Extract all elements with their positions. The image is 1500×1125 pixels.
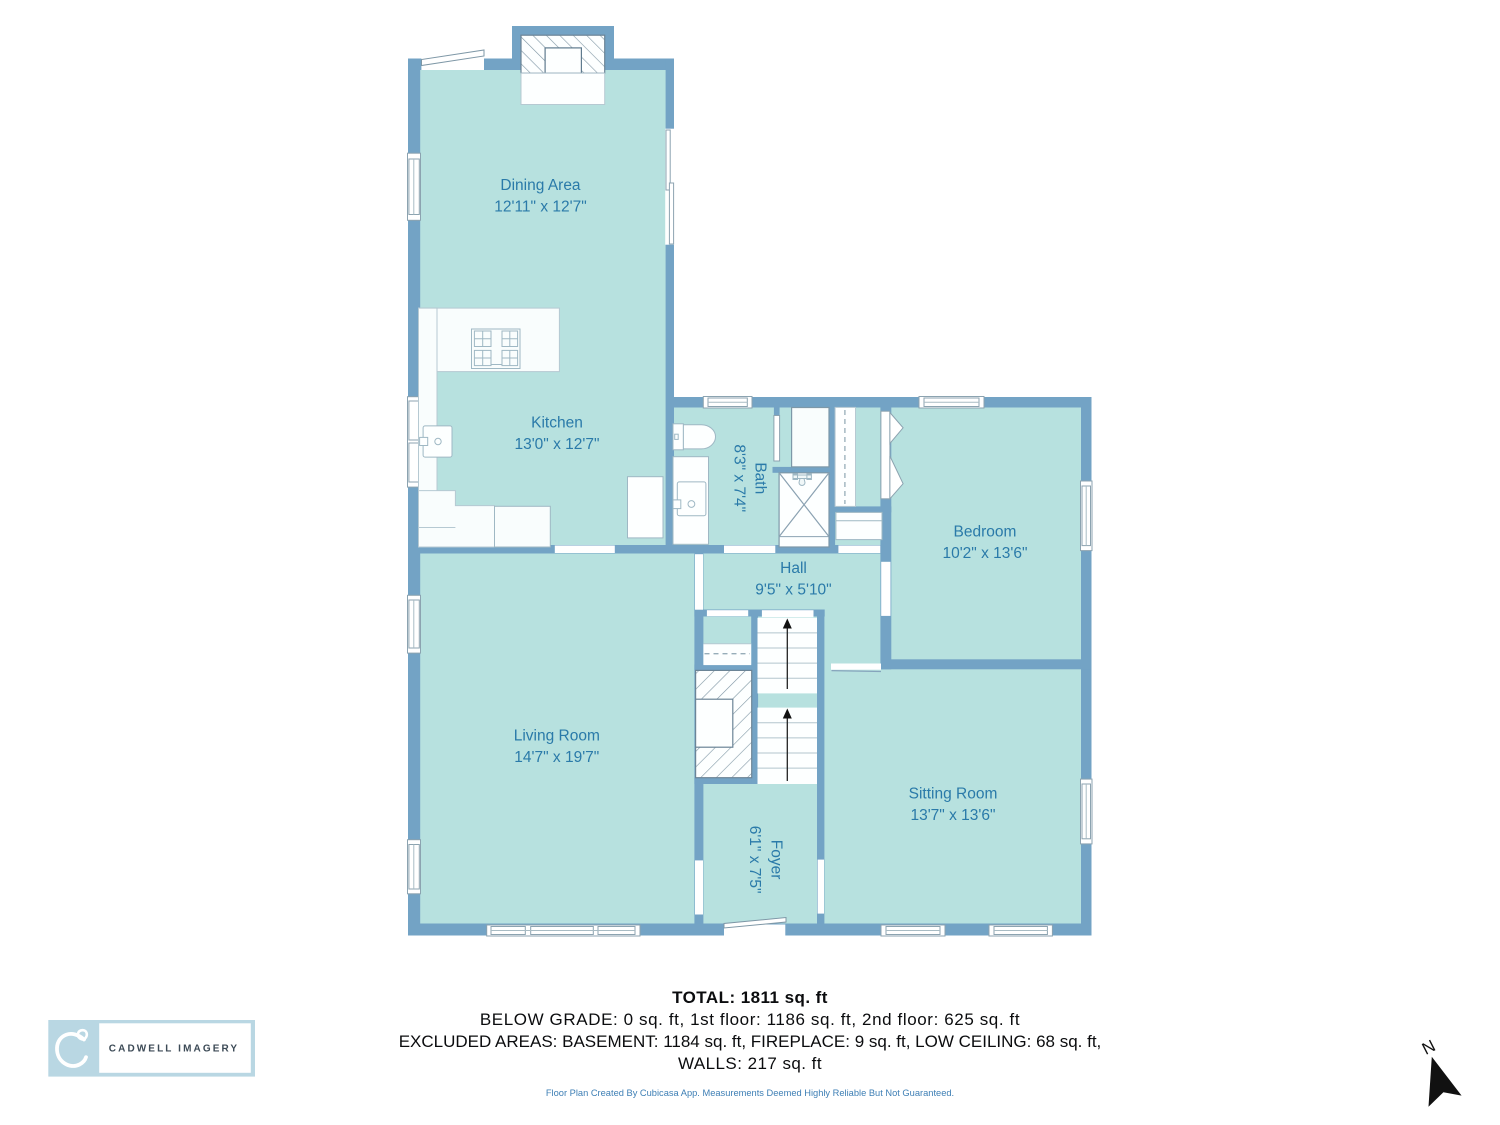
svg-text:Bedroom: Bedroom	[954, 524, 1017, 541]
svg-text:8'3" x 7'4": 8'3" x 7'4"	[730, 444, 747, 512]
svg-text:WALLS: 217 sq. ft: WALLS: 217 sq. ft	[678, 1054, 822, 1073]
svg-text:Living Room: Living Room	[514, 728, 600, 745]
svg-text:14'7" x 19'7": 14'7" x 19'7"	[514, 749, 599, 766]
svg-text:Hall: Hall	[780, 560, 807, 577]
svg-text:TOTAL: 1811 sq. ft: TOTAL: 1811 sq. ft	[672, 988, 828, 1007]
svg-text:12'11" x 12'7": 12'11" x 12'7"	[494, 199, 586, 216]
svg-text:CADWELL IMAGERY: CADWELL IMAGERY	[109, 1044, 239, 1055]
svg-text:Bath: Bath	[751, 462, 768, 494]
svg-text:13'0" x 12'7": 13'0" x 12'7"	[514, 436, 599, 453]
svg-text:Sitting Room: Sitting Room	[909, 786, 998, 803]
svg-text:13'7" x 13'6": 13'7" x 13'6"	[910, 807, 995, 824]
svg-text:EXCLUDED AREAS: BASEMENT: 1184: EXCLUDED AREAS: BASEMENT: 1184 sq. ft, F…	[399, 1032, 1102, 1051]
svg-text:Kitchen: Kitchen	[531, 415, 583, 432]
svg-text:Foyer: Foyer	[768, 840, 785, 880]
svg-text:BELOW GRADE: 0 sq. ft, 1st flo: BELOW GRADE: 0 sq. ft, 1st floor: 1186 s…	[480, 1010, 1020, 1029]
svg-text:N: N	[1419, 1036, 1439, 1059]
svg-text:10'2" x 13'6": 10'2" x 13'6"	[942, 545, 1027, 562]
svg-text:Floor Plan Created By Cubicasa: Floor Plan Created By Cubicasa App. Meas…	[546, 1088, 954, 1098]
svg-text:Dining Area: Dining Area	[500, 177, 581, 194]
svg-text:9'5" x 5'10": 9'5" x 5'10"	[755, 582, 831, 599]
svg-text:6'1" x 7'5": 6'1" x 7'5"	[746, 826, 763, 894]
